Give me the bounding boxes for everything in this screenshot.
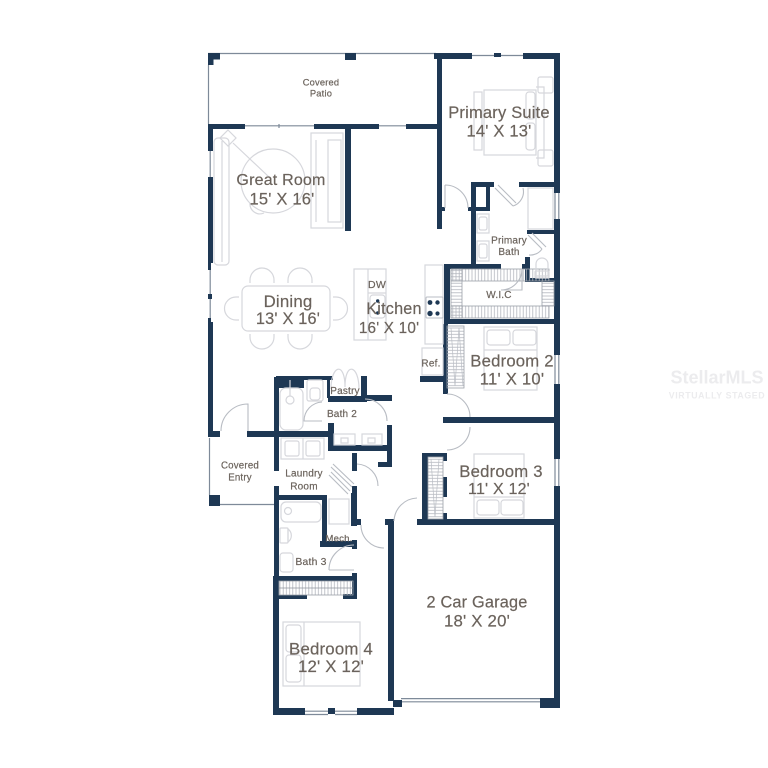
svg-text:Primary: Primary <box>491 236 527 247</box>
svg-text:W.I.C: W.I.C <box>486 290 511 301</box>
svg-text:Ref.: Ref. <box>421 359 440 370</box>
svg-text:Entry: Entry <box>228 472 252 483</box>
svg-text:15' X 16': 15' X 16' <box>250 190 315 208</box>
svg-text:11' X 10': 11' X 10' <box>480 369 544 388</box>
svg-text:Mech.: Mech. <box>325 533 352 544</box>
svg-text:Great Room: Great Room <box>236 172 325 189</box>
svg-text:Room: Room <box>290 482 317 493</box>
svg-text:Patio: Patio <box>310 89 332 99</box>
svg-text:Pastry: Pastry <box>330 386 360 397</box>
svg-text:18' X 20': 18' X 20' <box>444 611 510 630</box>
svg-text:Kitchen: Kitchen <box>366 300 421 318</box>
svg-text:Bath: Bath <box>498 247 519 258</box>
svg-text:13' X 16': 13' X 16' <box>256 310 320 328</box>
svg-text:16' X 10': 16' X 10' <box>359 320 419 337</box>
svg-text:Covered: Covered <box>303 78 340 88</box>
svg-text:Dining: Dining <box>264 292 313 311</box>
svg-text:StellarMLS: StellarMLS <box>670 367 763 387</box>
svg-text:Covered: Covered <box>221 460 259 471</box>
svg-text:Laundry: Laundry <box>285 469 323 480</box>
svg-text:2 Car Garage: 2 Car Garage <box>426 593 527 611</box>
svg-text:Bedroom 2: Bedroom 2 <box>470 351 553 370</box>
svg-text:Bedroom 3: Bedroom 3 <box>459 462 542 481</box>
svg-text:Bedroom 4: Bedroom 4 <box>289 639 373 658</box>
svg-text:VIRTUALLY STAGED: VIRTUALLY STAGED <box>669 391 765 401</box>
svg-text:Primary Suite: Primary Suite <box>448 104 550 122</box>
svg-text:DW: DW <box>368 279 386 291</box>
svg-text:Bath 3: Bath 3 <box>295 557 326 568</box>
svg-text:Bath 2: Bath 2 <box>327 409 357 420</box>
svg-text:12' X 12': 12' X 12' <box>298 657 364 676</box>
svg-text:14' X 13': 14' X 13' <box>467 122 532 140</box>
svg-text:11' X 12': 11' X 12' <box>468 481 530 498</box>
